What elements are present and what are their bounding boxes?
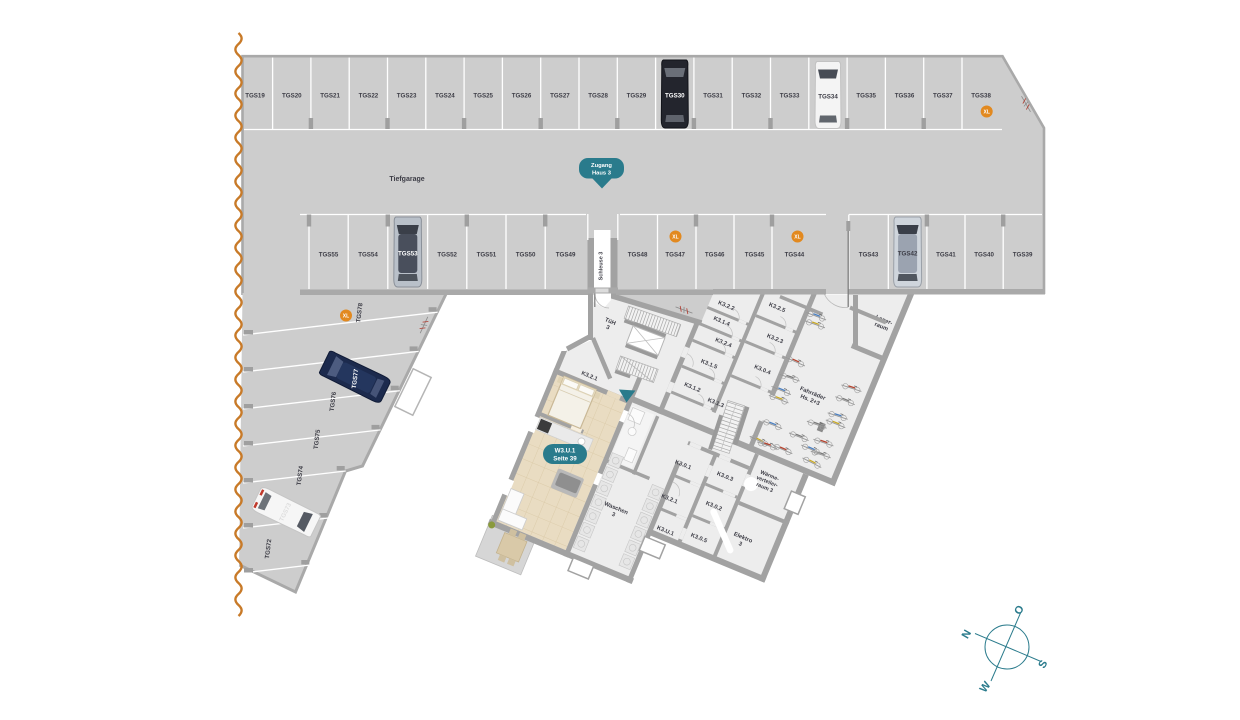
svg-text:Tiefgarage: Tiefgarage: [389, 176, 424, 183]
svg-text:TGS49: TGS49: [556, 252, 576, 259]
svg-text:XL: XL: [672, 234, 678, 240]
svg-text:TGS36: TGS36: [895, 93, 915, 100]
svg-text:TGS32: TGS32: [742, 93, 762, 100]
svg-text:TGS42: TGS42: [898, 251, 918, 258]
svg-text:XL: XL: [984, 109, 990, 115]
svg-text:TGS46: TGS46: [705, 252, 725, 259]
svg-text:XL: XL: [794, 234, 800, 240]
svg-text:TGS24: TGS24: [435, 93, 455, 100]
svg-text:TGS53: TGS53: [398, 251, 418, 258]
svg-text:Seite 39: Seite 39: [553, 456, 577, 463]
svg-text:TGS27: TGS27: [550, 93, 570, 100]
svg-text:TGS40: TGS40: [974, 252, 994, 259]
svg-text:TGS51: TGS51: [477, 252, 497, 259]
svg-text:TGS45: TGS45: [745, 252, 765, 259]
svg-text:TGS31: TGS31: [703, 93, 723, 100]
svg-text:TGS41: TGS41: [936, 252, 956, 259]
svg-text:TGS39: TGS39: [1013, 252, 1033, 259]
svg-text:TGS20: TGS20: [282, 93, 302, 100]
svg-text:TGS35: TGS35: [856, 93, 876, 100]
svg-text:TGS23: TGS23: [397, 93, 417, 100]
svg-text:TGS52: TGS52: [437, 252, 457, 259]
svg-text:TGS26: TGS26: [512, 93, 532, 100]
svg-text:TGS22: TGS22: [359, 93, 379, 100]
svg-text:TGS28: TGS28: [588, 93, 608, 100]
svg-text:TGS37: TGS37: [933, 93, 953, 100]
svg-text:Schleuse 3: Schleuse 3: [599, 252, 605, 281]
svg-text:TGS50: TGS50: [516, 252, 536, 259]
svg-text:XL: XL: [343, 313, 349, 319]
svg-text:TGS29: TGS29: [627, 93, 647, 100]
svg-text:W3.U.1: W3.U.1: [555, 448, 576, 455]
svg-text:TGS47: TGS47: [665, 252, 685, 259]
svg-text:TGS48: TGS48: [628, 252, 648, 259]
svg-text:TGS34: TGS34: [818, 94, 838, 101]
svg-text:TGS55: TGS55: [319, 252, 339, 259]
svg-text:TGS25: TGS25: [473, 93, 493, 100]
svg-text:TGS30: TGS30: [665, 93, 685, 100]
svg-text:TGS21: TGS21: [320, 93, 340, 100]
svg-text:TGS44: TGS44: [785, 252, 805, 259]
svg-text:Zugang: Zugang: [591, 163, 612, 169]
svg-text:TGS38: TGS38: [971, 93, 991, 100]
svg-text:TGS54: TGS54: [358, 252, 378, 259]
svg-text:TGS19: TGS19: [245, 93, 265, 100]
svg-text:TGS33: TGS33: [780, 93, 800, 100]
svg-text:Haus 3: Haus 3: [592, 171, 612, 177]
svg-text:TGS43: TGS43: [859, 252, 879, 259]
